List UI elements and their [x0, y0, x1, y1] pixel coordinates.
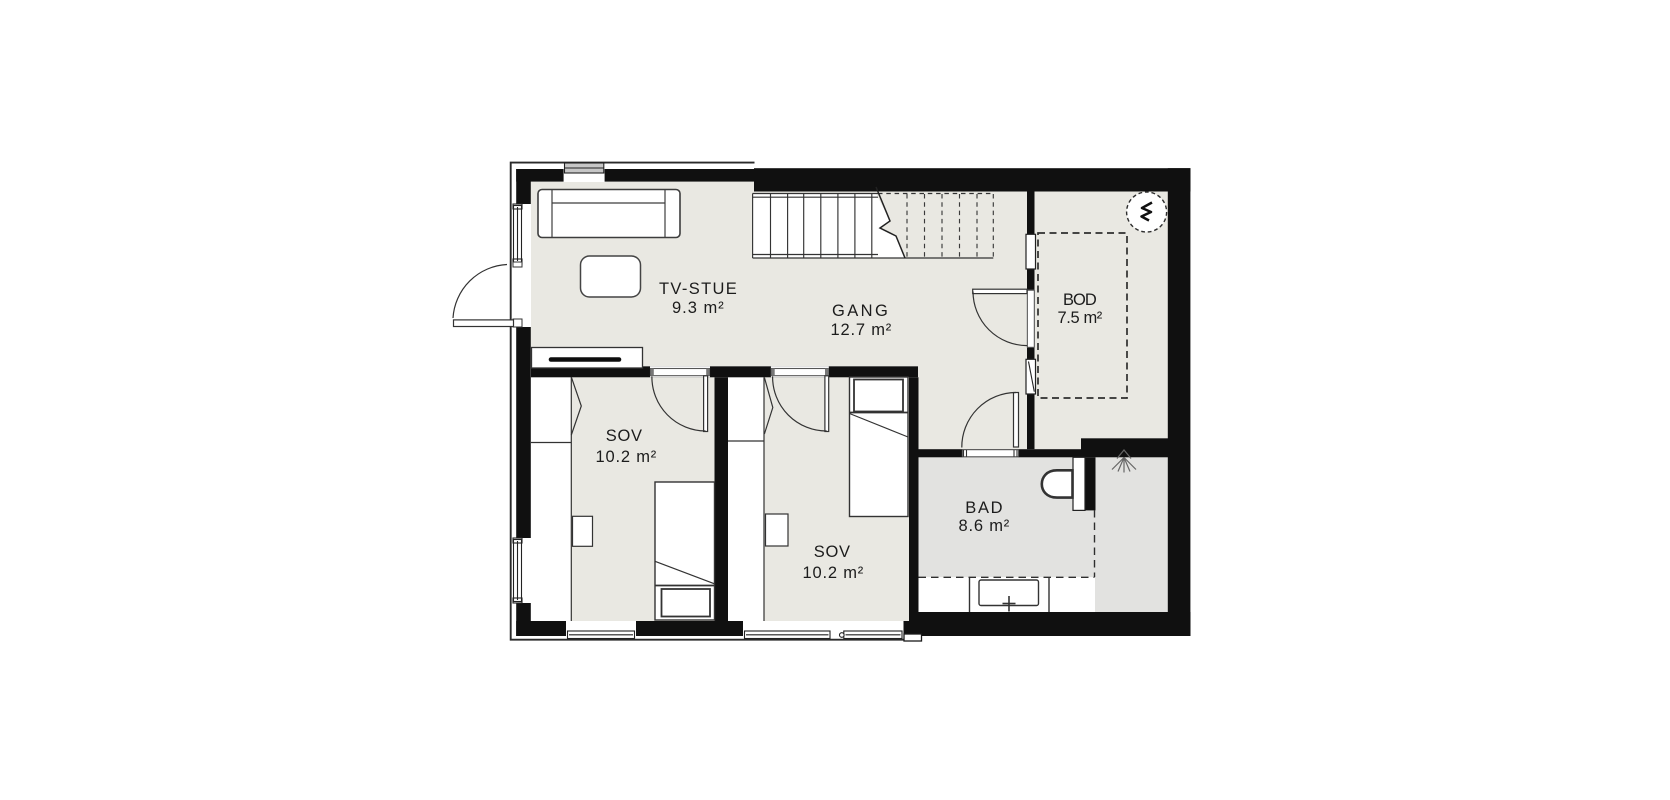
svg-text:SOV: SOV [814, 543, 851, 561]
svg-text:10.2 m²: 10.2 m² [803, 564, 864, 582]
svg-text:GANG: GANG [832, 302, 888, 320]
svg-text:7.5 m²: 7.5 m² [1058, 309, 1103, 327]
svg-text:BAD: BAD [965, 499, 1003, 517]
svg-text:8.6 m²: 8.6 m² [959, 517, 1010, 535]
svg-text:12.7 m²: 12.7 m² [831, 321, 892, 339]
svg-text:SOV: SOV [606, 427, 643, 445]
svg-text:10.2 m²: 10.2 m² [596, 448, 657, 466]
svg-text:TV-STUE: TV-STUE [659, 280, 737, 298]
svg-text:9.3 m²: 9.3 m² [672, 299, 724, 317]
svg-text:BOD: BOD [1063, 291, 1097, 309]
